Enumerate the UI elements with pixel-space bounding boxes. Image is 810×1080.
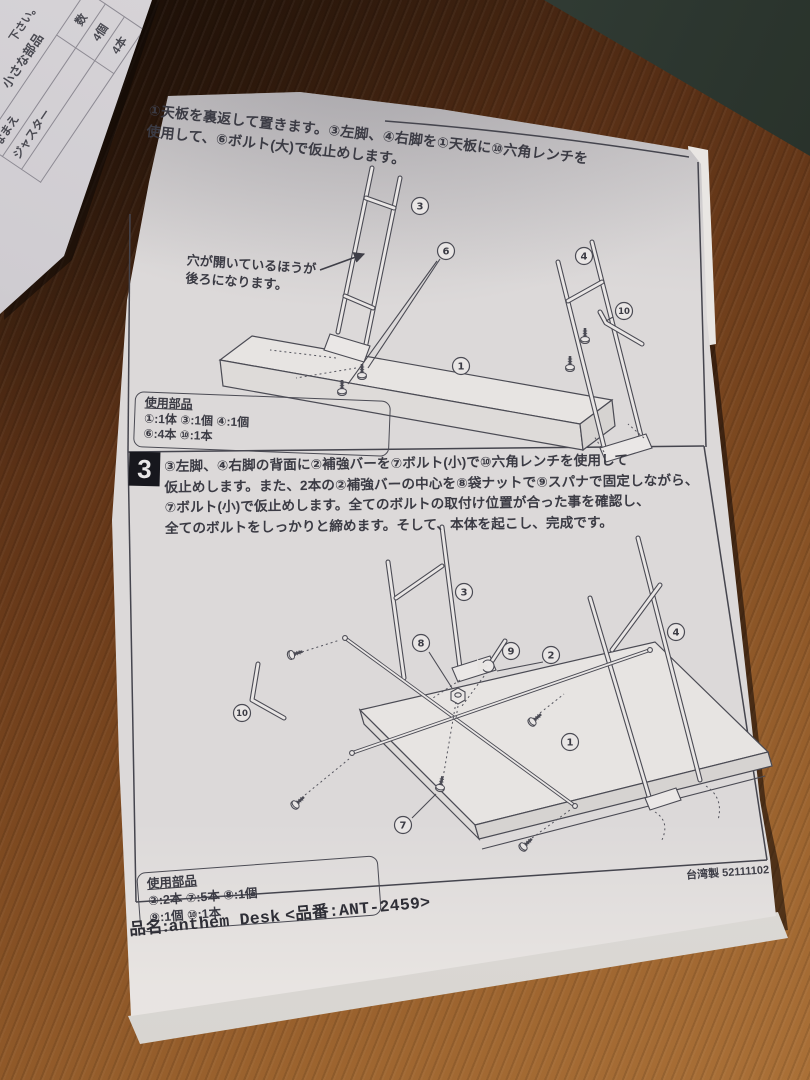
bolt-icon xyxy=(286,647,303,660)
part-label-hex-wrench: 10 xyxy=(616,303,633,320)
bolt-icon xyxy=(289,794,306,811)
photo-of-assembly-manual: 下さい。 小さな部品 なまえ 数 ジャスター 4個 4本 xyxy=(0,0,810,1080)
svg-text:1: 1 xyxy=(458,362,465,373)
svg-text:2: 2 xyxy=(548,651,555,662)
part-label-left-leg: 3 xyxy=(456,584,473,601)
part-label-brace: 2 xyxy=(543,647,560,664)
bolt-icon xyxy=(581,328,590,344)
part-label-right-leg: 4 xyxy=(576,248,593,265)
svg-text:10: 10 xyxy=(618,307,630,317)
step3-number-badge: 3 xyxy=(129,452,161,487)
product-name-label: 品名: xyxy=(128,917,169,939)
step3-diagram: 3 8 9 2 4 10 1 xyxy=(234,527,773,853)
part-label-top-panel: 1 xyxy=(453,358,470,375)
part-label-top-panel: 1 xyxy=(562,734,579,751)
svg-text:10: 10 xyxy=(236,709,248,719)
hex-wrench-icon xyxy=(252,664,284,718)
note-arrow xyxy=(320,254,364,270)
bolt-icon xyxy=(566,356,575,372)
svg-text:6: 6 xyxy=(443,247,450,258)
svg-text:3: 3 xyxy=(461,588,468,599)
svg-text:9: 9 xyxy=(508,647,515,658)
cap-nut-icon xyxy=(451,688,465,704)
part-label-hex-wrench: 10 xyxy=(234,705,251,722)
svg-text:4: 4 xyxy=(581,252,588,263)
part-label-bolt-small: 7 xyxy=(395,817,412,834)
part-label-cap-nut: 8 xyxy=(413,635,430,652)
svg-text:1: 1 xyxy=(567,738,574,749)
part-label-left-leg: 3 xyxy=(412,198,429,215)
svg-text:7: 7 xyxy=(400,821,407,832)
part-label-right-leg: 4 xyxy=(668,624,685,641)
part-label-bolt-large: 6 xyxy=(438,243,455,260)
parts-box-title: 使用部品 xyxy=(144,395,193,411)
part-label-spanner: 9 xyxy=(503,643,520,660)
step2-parts-box: 使用部品 ①:1体 ③:1個 ④:1個 ⑥:4本 ⑩:1本 xyxy=(133,391,391,456)
svg-text:4: 4 xyxy=(673,628,680,639)
svg-text:3: 3 xyxy=(417,202,424,213)
step3-instruction-text: ③左脚、④右脚の背面に②補強バーを⑦ボルト(小)で⑩六角レンチを使用して 仮止め… xyxy=(164,449,751,540)
parts-box-title: 使用部品 xyxy=(146,874,197,892)
svg-text:8: 8 xyxy=(418,639,425,650)
